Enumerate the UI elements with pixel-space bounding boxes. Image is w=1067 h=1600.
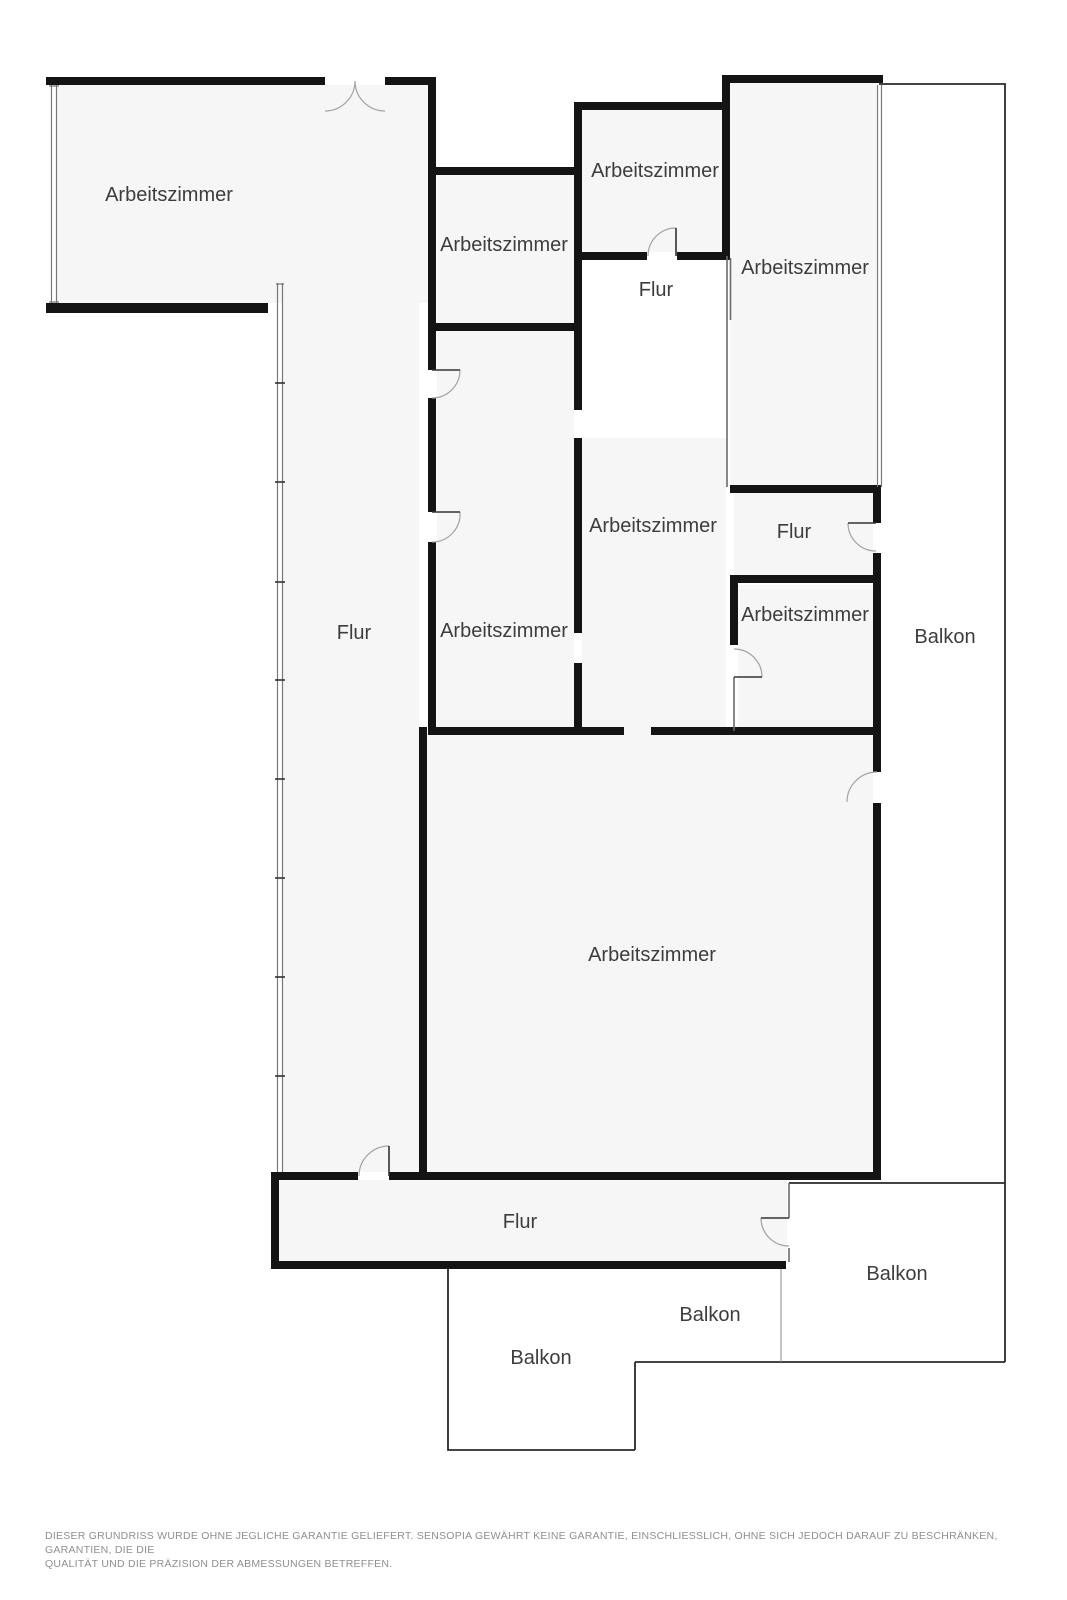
room-fill-right [730,83,876,487]
room-fill-mid-left [437,331,574,727]
room-label-flur-right: Flur [777,521,812,543]
room-label-flur-top: Flur [639,279,674,301]
disclaimer-line-1: DIESER GRUNDRISS WURDE OHNE JEGLICHE GAR… [45,1529,1020,1557]
room-label-arbeitszimmer-small-right: Arbeitszimmer [741,604,869,626]
floorplan-svg: ArbeitszimmerArbeitszimmerArbeitszimmerF… [0,0,1067,1600]
room-label-arbeitszimmer-upper-mid: Arbeitszimmer [440,234,568,256]
disclaimer-line-2: QUALITÄT UND DIE PRÄZISION DER ABMESSUNG… [45,1557,1020,1571]
room-label-arbeitszimmer-mid-left: Arbeitszimmer [440,620,568,642]
floorplan-page: ArbeitszimmerArbeitszimmerArbeitszimmerF… [0,0,1067,1600]
room-label-balkon-bottom-mid: Balkon [679,1304,740,1326]
room-label-arbeitszimmer-top: Arbeitszimmer [591,160,719,182]
room-label-flur-bottom: Flur [503,1211,538,1233]
room-fill-mid [582,438,726,727]
room-label-arbeitszimmer-top-left: Arbeitszimmer [105,184,233,206]
room-label-balkon-bottom-left: Balkon [510,1347,571,1369]
room-fill-passage [624,727,651,735]
window-right-room [878,85,882,487]
room-label-arbeitszimmer-big: Arbeitszimmer [588,944,716,966]
room-fill-flur-left [283,300,419,1172]
room-label-balkon-right-strip: Balkon [914,626,975,648]
disclaimer: DIESER GRUNDRISS WURDE OHNE JEGLICHE GAR… [45,1529,1020,1571]
room-label-arbeitszimmer-mid: Arbeitszimmer [589,515,717,537]
balcony-right-outline [879,84,1005,1362]
room-label-arbeitszimmer-right: Arbeitszimmer [741,257,869,279]
room-label-flur-left: Flur [337,622,372,644]
window-flur-left [276,283,284,1172]
room-label-balkon-bottom-right: Balkon [866,1263,927,1285]
